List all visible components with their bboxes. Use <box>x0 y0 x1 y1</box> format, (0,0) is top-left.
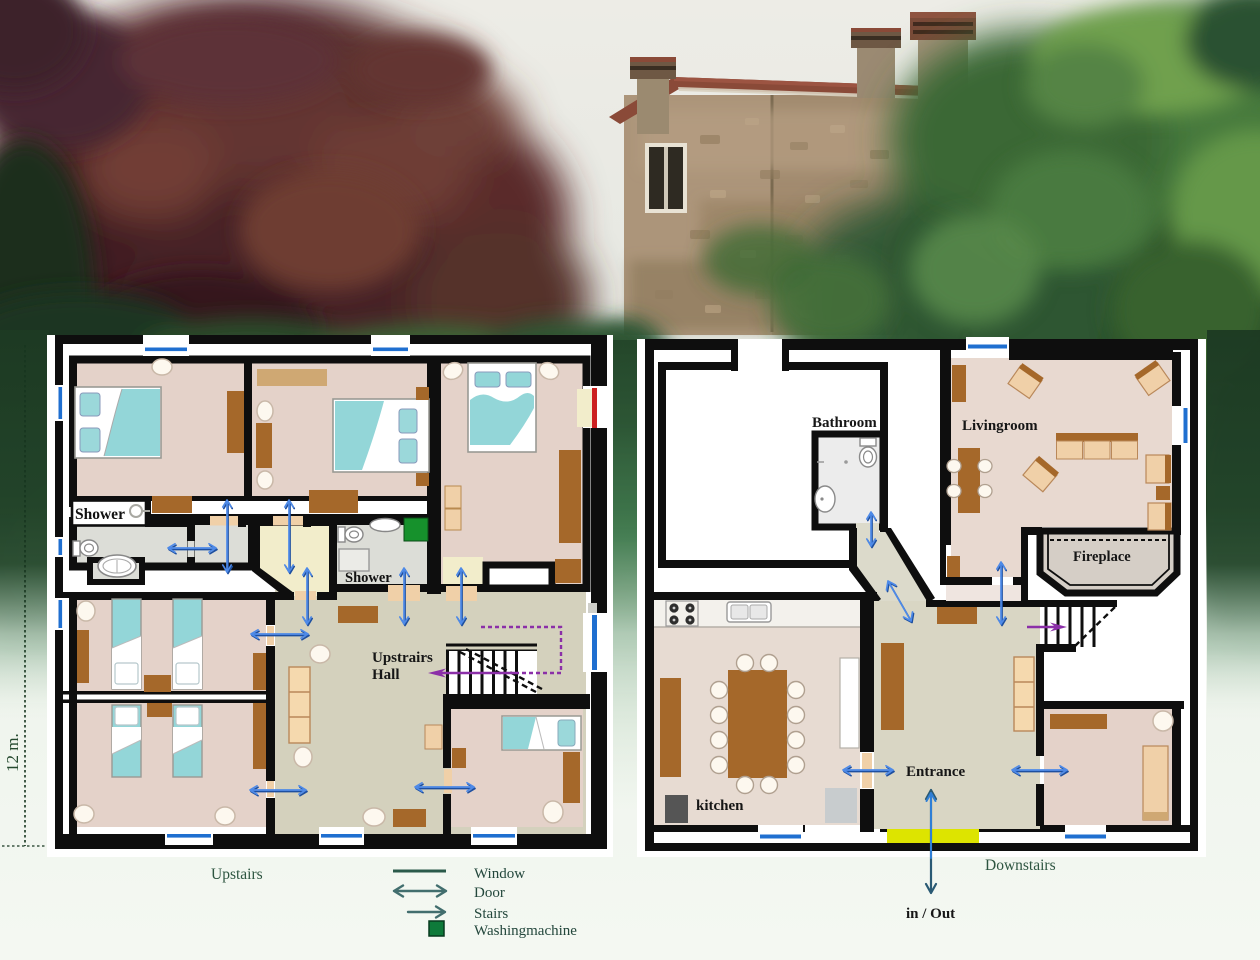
svg-text:Stairs: Stairs <box>474 906 508 922</box>
svg-text:kitchen: kitchen <box>696 798 744 814</box>
svg-text:Door: Door <box>474 885 505 901</box>
svg-text:Bathroom: Bathroom <box>812 415 877 431</box>
svg-text:Livingroom: Livingroom <box>962 418 1038 434</box>
svg-text:12 m.: 12 m. <box>3 733 22 772</box>
svg-text:Fireplace: Fireplace <box>1073 549 1131 565</box>
svg-text:Shower: Shower <box>345 570 392 586</box>
svg-text:Window: Window <box>474 866 525 882</box>
svg-text:Washingmachine: Washingmachine <box>474 923 577 939</box>
svg-text:Shower: Shower <box>75 506 125 523</box>
svg-text:Hall: Hall <box>372 667 400 683</box>
svg-text:Downstairs: Downstairs <box>985 857 1056 874</box>
svg-text:Entrance: Entrance <box>906 764 966 780</box>
svg-text:in / Out: in / Out <box>906 906 955 922</box>
svg-text:Upstrairs: Upstrairs <box>372 650 433 666</box>
svg-text:Upstairs: Upstairs <box>211 866 263 883</box>
